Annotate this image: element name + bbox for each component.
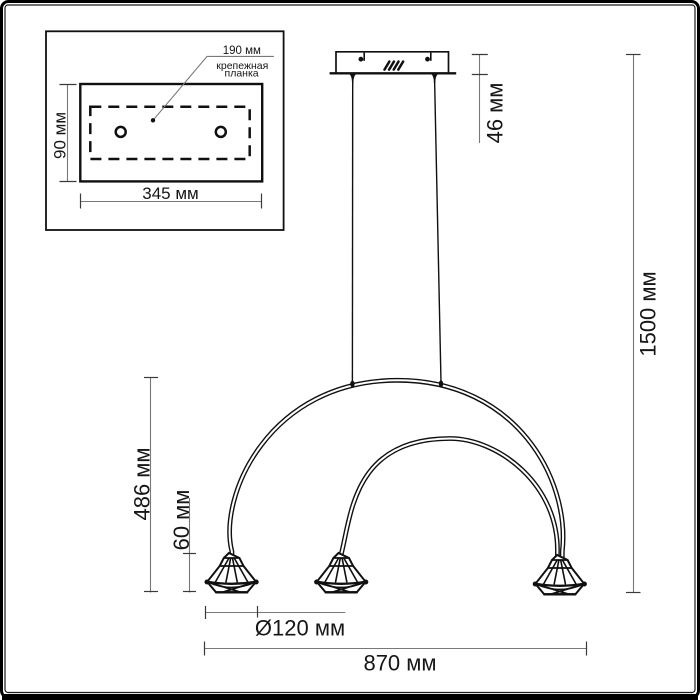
- svg-text:345 мм: 345 мм: [142, 184, 198, 203]
- svg-text:46 мм: 46 мм: [483, 83, 508, 144]
- svg-text:190 мм: 190 мм: [223, 45, 261, 57]
- svg-text:90 мм: 90 мм: [51, 112, 70, 159]
- svg-text:Ø120 мм: Ø120 мм: [255, 616, 345, 641]
- svg-text:1500 мм: 1500 мм: [636, 271, 661, 356]
- svg-text:60 мм: 60 мм: [169, 490, 194, 551]
- svg-text:486 мм: 486 мм: [130, 447, 155, 520]
- svg-text:планка: планка: [225, 68, 259, 80]
- svg-text:870 мм: 870 мм: [363, 651, 436, 676]
